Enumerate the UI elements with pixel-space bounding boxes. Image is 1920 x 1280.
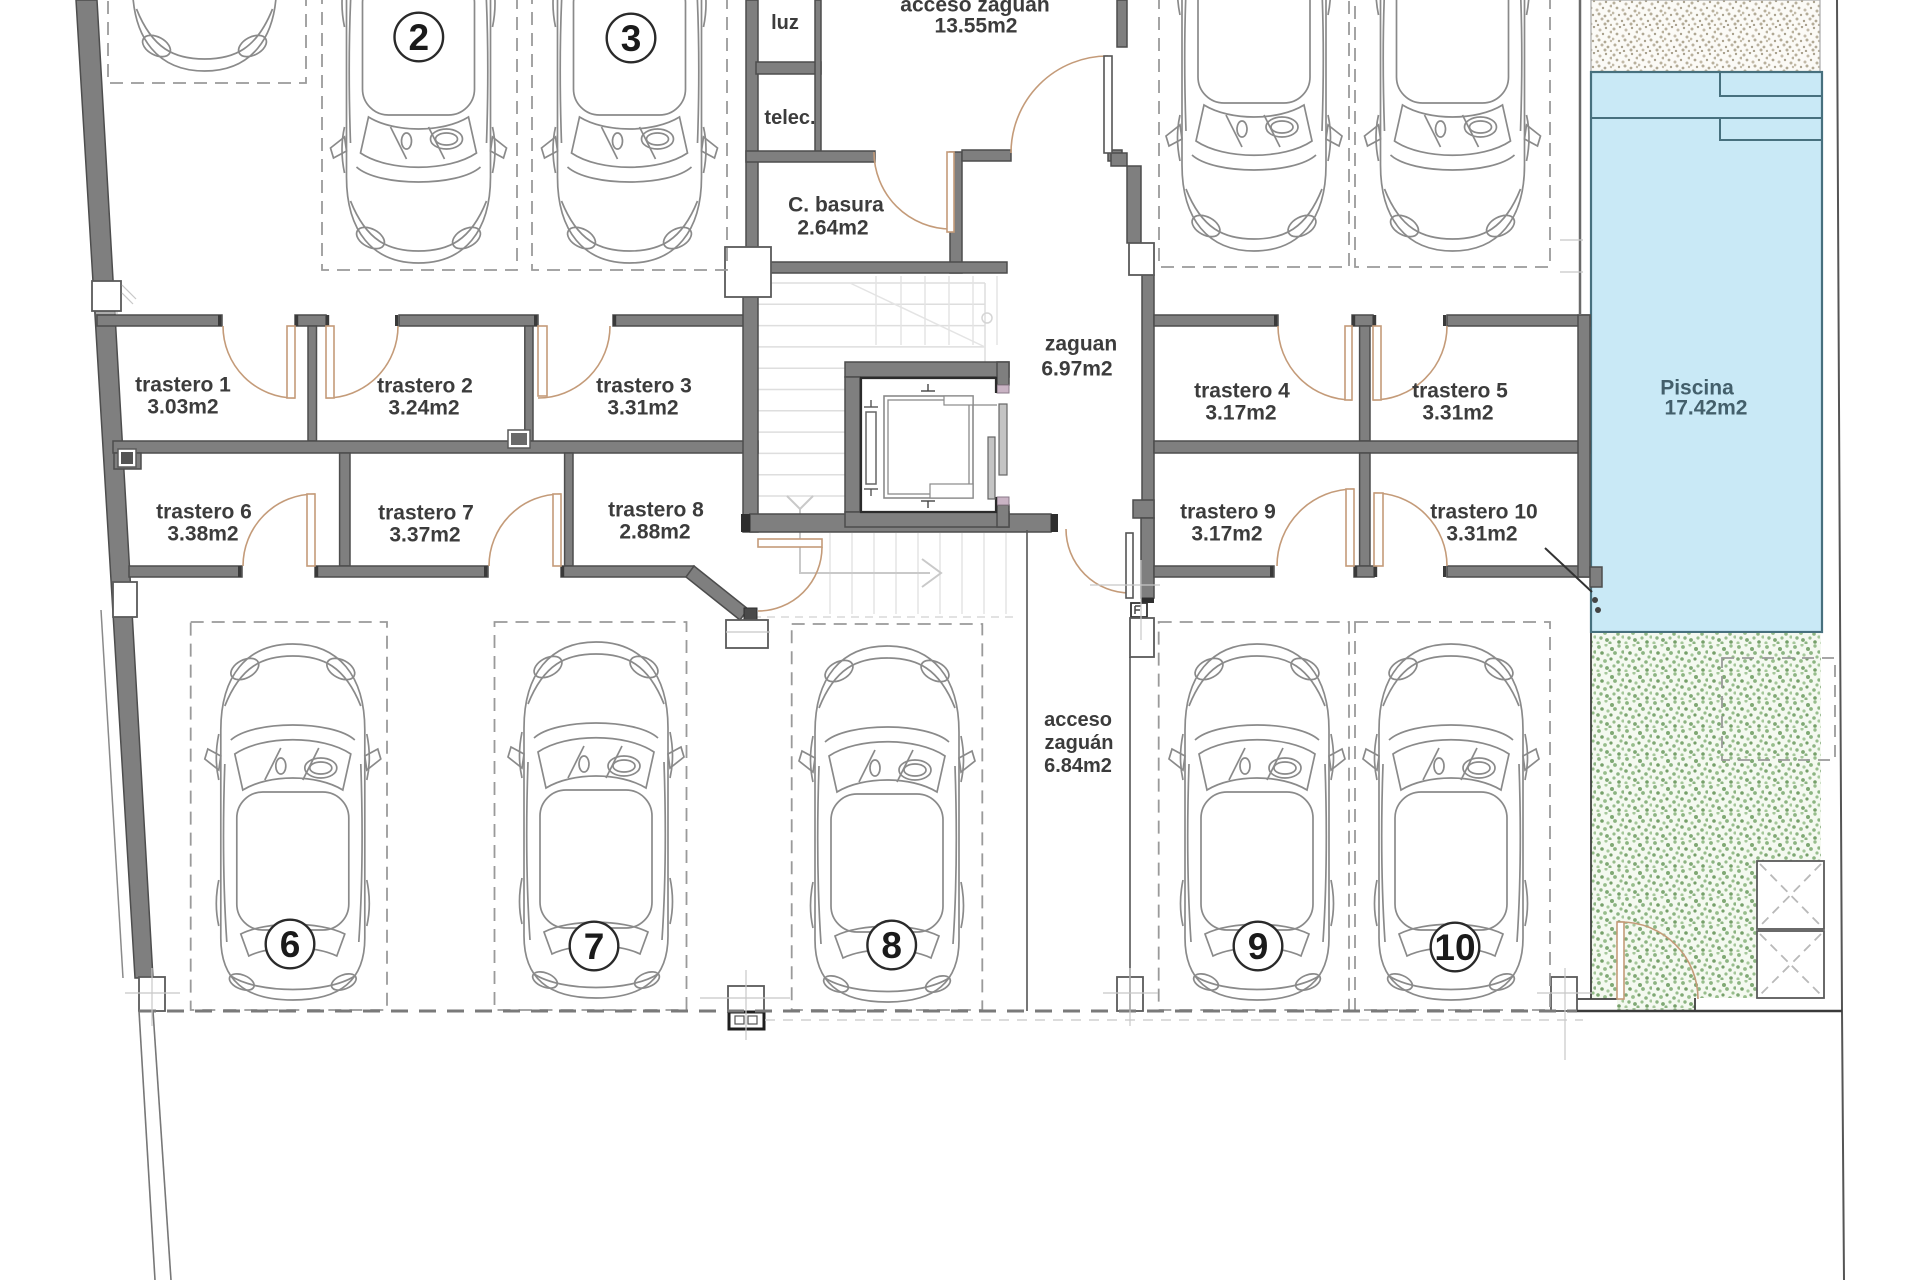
svg-text:3.31m2: 3.31m2	[607, 397, 678, 420]
svg-text:13.55m2: 13.55m2	[935, 15, 1018, 38]
svg-text:3.03m2: 3.03m2	[147, 396, 218, 419]
svg-text:2.88m2: 2.88m2	[619, 521, 690, 544]
svg-text:17.42m2: 17.42m2	[1665, 397, 1748, 420]
svg-text:trastero 1: trastero 1	[135, 374, 231, 397]
svg-text:3.37m2: 3.37m2	[389, 524, 460, 547]
svg-text:3.24m2: 3.24m2	[388, 397, 459, 420]
svg-text:trastero 9: trastero 9	[1180, 501, 1276, 524]
svg-text:6: 6	[280, 924, 301, 965]
svg-text:trastero 6: trastero 6	[156, 501, 252, 524]
svg-text:6.84m2: 6.84m2	[1044, 755, 1112, 777]
svg-text:8: 8	[881, 925, 902, 966]
svg-text:3: 3	[621, 18, 642, 59]
svg-text:3.31m2: 3.31m2	[1422, 402, 1493, 425]
svg-text:trastero 5: trastero 5	[1412, 380, 1508, 403]
svg-text:3.17m2: 3.17m2	[1191, 523, 1262, 546]
svg-text:C. basura: C. basura	[788, 194, 884, 217]
svg-text:9: 9	[1248, 926, 1269, 967]
svg-text:zaguan: zaguan	[1045, 333, 1117, 356]
svg-text:3.31m2: 3.31m2	[1446, 523, 1517, 546]
svg-text:trastero 10: trastero 10	[1430, 501, 1537, 524]
svg-text:trastero 8: trastero 8	[608, 499, 704, 522]
svg-text:3.38m2: 3.38m2	[167, 523, 238, 546]
svg-text:acceso: acceso	[1044, 709, 1112, 731]
svg-text:2.64m2: 2.64m2	[797, 217, 868, 240]
svg-text:3.17m2: 3.17m2	[1205, 402, 1276, 425]
svg-text:7: 7	[584, 926, 605, 967]
svg-text:trastero 4: trastero 4	[1194, 380, 1290, 403]
svg-text:trastero 7: trastero 7	[378, 502, 474, 525]
svg-text:2: 2	[409, 17, 430, 58]
svg-text:10: 10	[1434, 927, 1475, 968]
svg-text:6.97m2: 6.97m2	[1041, 358, 1112, 381]
svg-text:trastero 2: trastero 2	[377, 375, 473, 398]
svg-text:telec.: telec.	[764, 107, 815, 129]
svg-text:zaguán: zaguán	[1045, 732, 1114, 754]
svg-text:luz: luz	[771, 12, 799, 34]
svg-text:trastero 3: trastero 3	[596, 375, 692, 398]
